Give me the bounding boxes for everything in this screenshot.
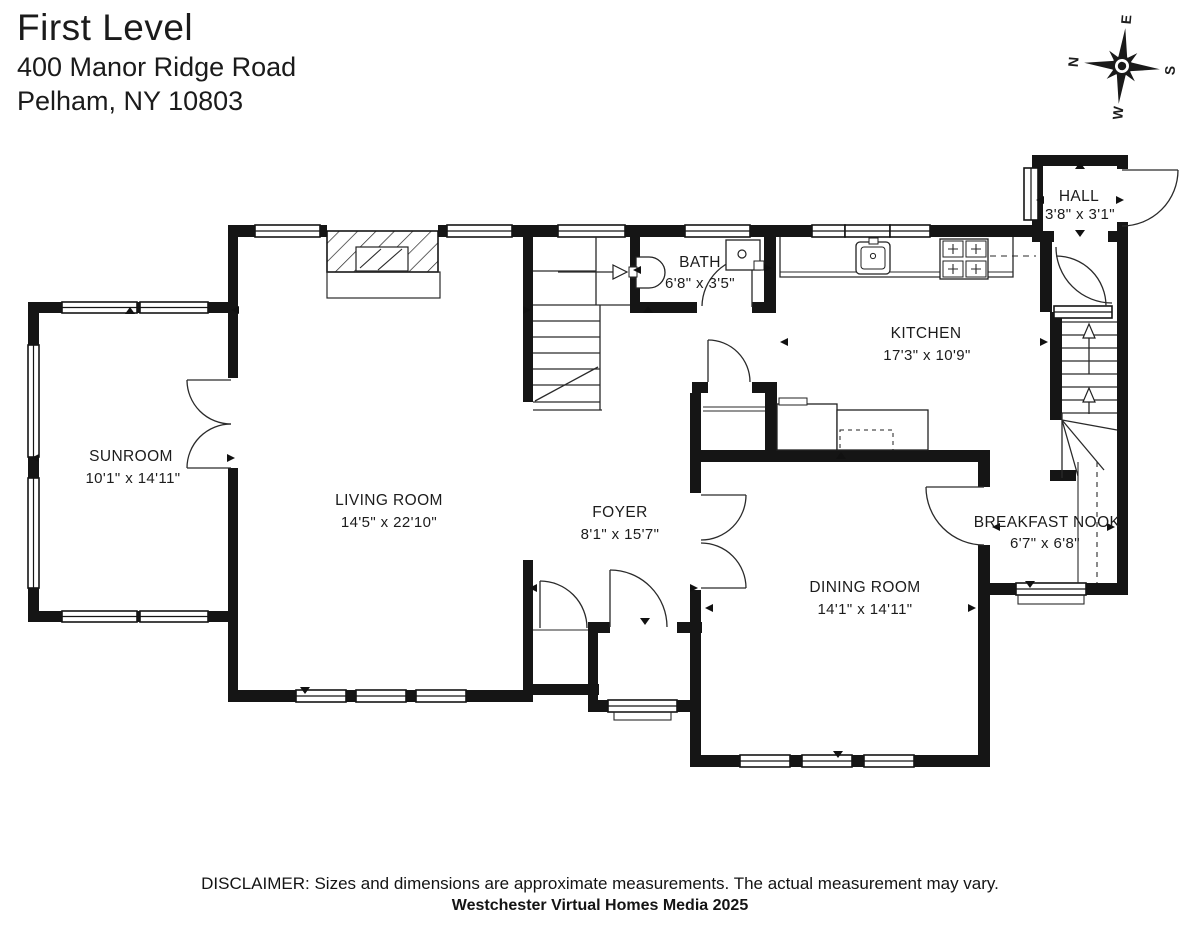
toilet-icon: [726, 240, 764, 270]
foyer-label: FOYER: [592, 504, 647, 521]
kitchen-sink-icon: [856, 238, 890, 274]
living-room-dims: 14'5" x 22'10": [341, 514, 437, 531]
compass-n: N: [1065, 56, 1082, 68]
kitchen-counter: [780, 237, 1036, 277]
stove-icon: [940, 239, 988, 279]
compass-e: E: [1118, 14, 1135, 25]
compass-w: W: [1109, 105, 1126, 120]
compass-s: S: [1161, 65, 1178, 76]
fireplace: [327, 231, 440, 298]
dining-room-label: DINING ROOM: [809, 579, 920, 596]
kitchen-dims: 17'3" x 10'9": [883, 347, 970, 364]
breakfast-nook-dims: 6'7" x 6'8": [1010, 535, 1080, 552]
footer: DISCLAIMER: Sizes and dimensions are app…: [0, 874, 1200, 915]
floor-plan-drawing: SUNROOM 10'1" x 14'11" LIVING ROOM 14'5"…: [0, 0, 1200, 927]
refrigerator-icon: [777, 398, 837, 450]
bath-dims: 6'8" x 3'5": [665, 275, 735, 292]
hall-label: HALL: [1059, 188, 1099, 205]
dining-room-dims: 14'1" x 14'11": [817, 601, 912, 618]
bath-label: BATH: [679, 254, 721, 271]
main-staircase: [533, 237, 640, 410]
closet-rod: [703, 407, 765, 411]
foyer-dims: 8'1" x 15'7": [581, 526, 660, 543]
compass-rose-icon: N E S W: [1061, 9, 1183, 124]
living-room-label: LIVING ROOM: [335, 492, 443, 509]
sunroom-dims: 10'1" x 14'11": [85, 470, 180, 487]
sunroom-label: SUNROOM: [89, 448, 173, 465]
kitchen-island-counter: [837, 410, 928, 450]
kitchen-label: KITCHEN: [891, 325, 962, 342]
breakfast-nook-label: BREAKFAST NOOK: [974, 514, 1121, 531]
hall-dims: 3'8" x 3'1": [1045, 206, 1115, 223]
floor-plan-page: First Level 400 Manor Ridge Road Pelham,…: [0, 0, 1200, 927]
credit-text: Westchester Virtual Homes Media 2025: [0, 897, 1200, 915]
disclaimer-text: DISCLAIMER: Sizes and dimensions are app…: [0, 874, 1200, 894]
